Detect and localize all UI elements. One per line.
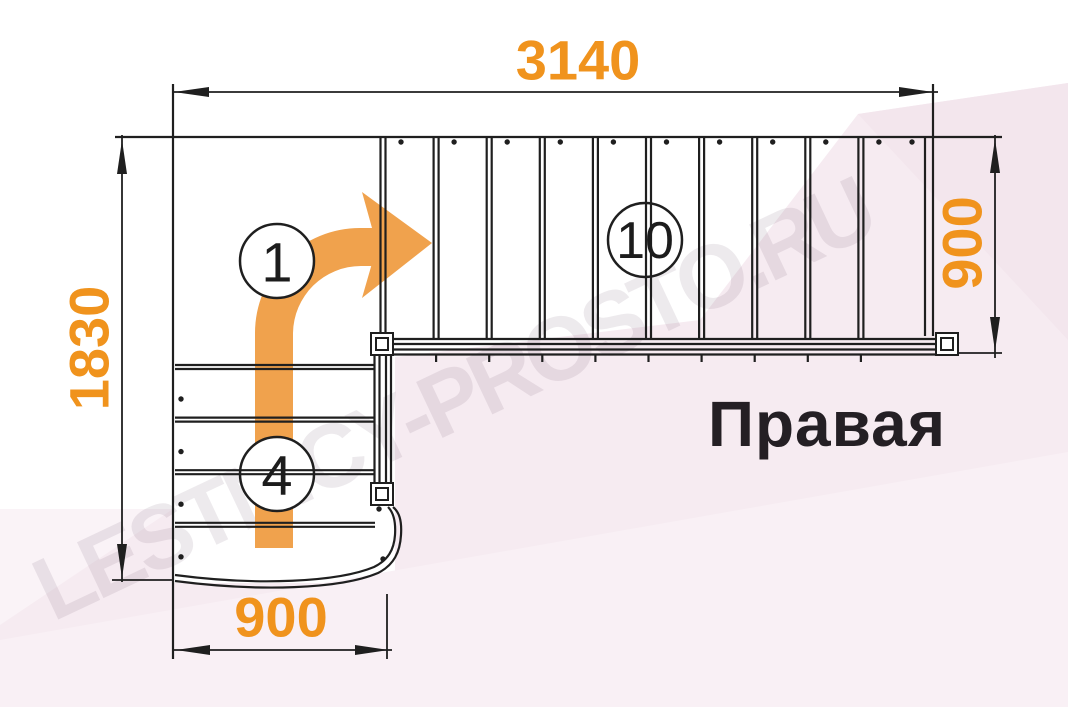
orientation-label: Правая bbox=[708, 387, 946, 461]
step-1-number: 1 bbox=[261, 230, 292, 295]
staircase-drawing bbox=[0, 0, 1068, 707]
staircase-plan-diagram: LESTNICY-PROSTO.RU bbox=[0, 0, 1068, 707]
dimension-bottom-label: 900 bbox=[234, 585, 327, 650]
dimension-lines bbox=[112, 87, 1002, 659]
structure-lines bbox=[115, 84, 1002, 659]
dimension-top-label: 3140 bbox=[516, 28, 641, 93]
dimension-right-label: 900 bbox=[930, 196, 995, 289]
step-10-number: 10 bbox=[616, 211, 674, 271]
step-4-number: 4 bbox=[261, 443, 292, 508]
dimension-left-label: 1830 bbox=[57, 286, 122, 411]
